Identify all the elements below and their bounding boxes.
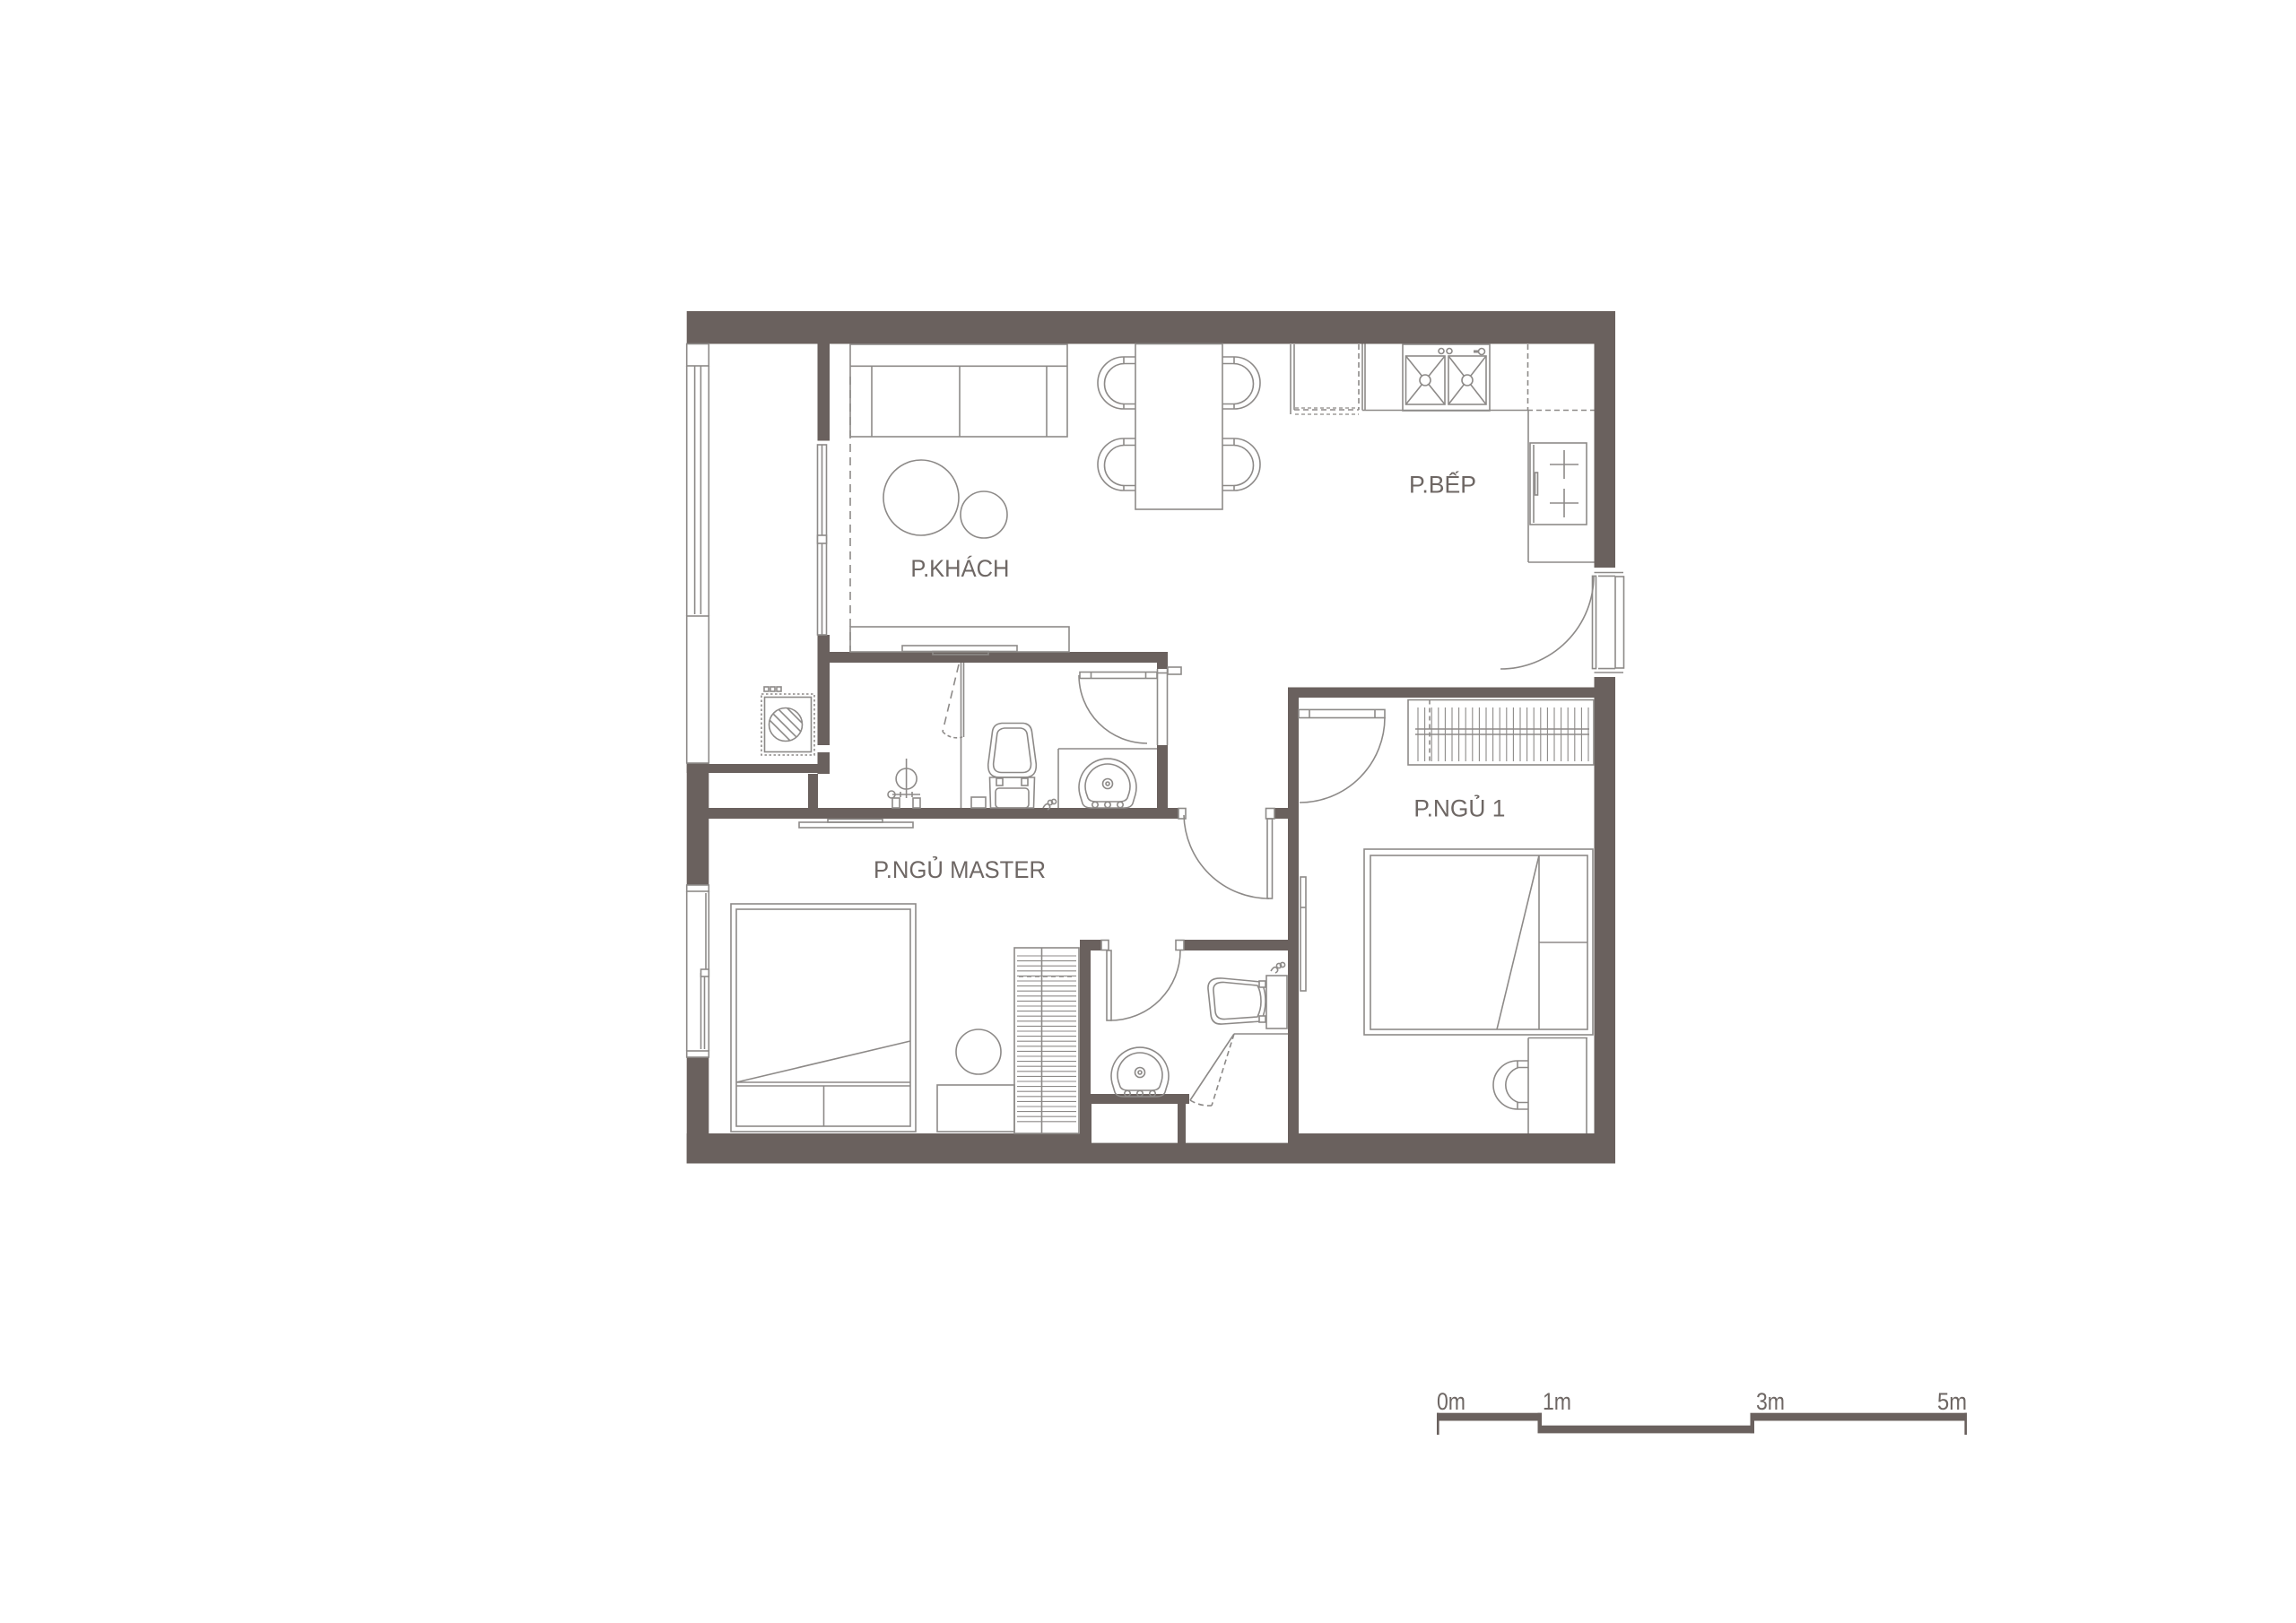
svg-text:P.NGỦ MASTER: P.NGỦ MASTER bbox=[874, 856, 1046, 883]
svg-text:0m: 0m bbox=[1437, 1388, 1465, 1415]
svg-text:5m: 5m bbox=[1937, 1388, 1967, 1415]
svg-text:P.KHÁCH: P.KHÁCH bbox=[910, 555, 1009, 582]
svg-text:P.BẾP: P.BẾP bbox=[1409, 472, 1476, 499]
svg-text:1m: 1m bbox=[1543, 1388, 1571, 1415]
svg-text:3m: 3m bbox=[1756, 1388, 1785, 1415]
svg-text:P.NGỦ 1: P.NGỦ 1 bbox=[1413, 795, 1505, 822]
